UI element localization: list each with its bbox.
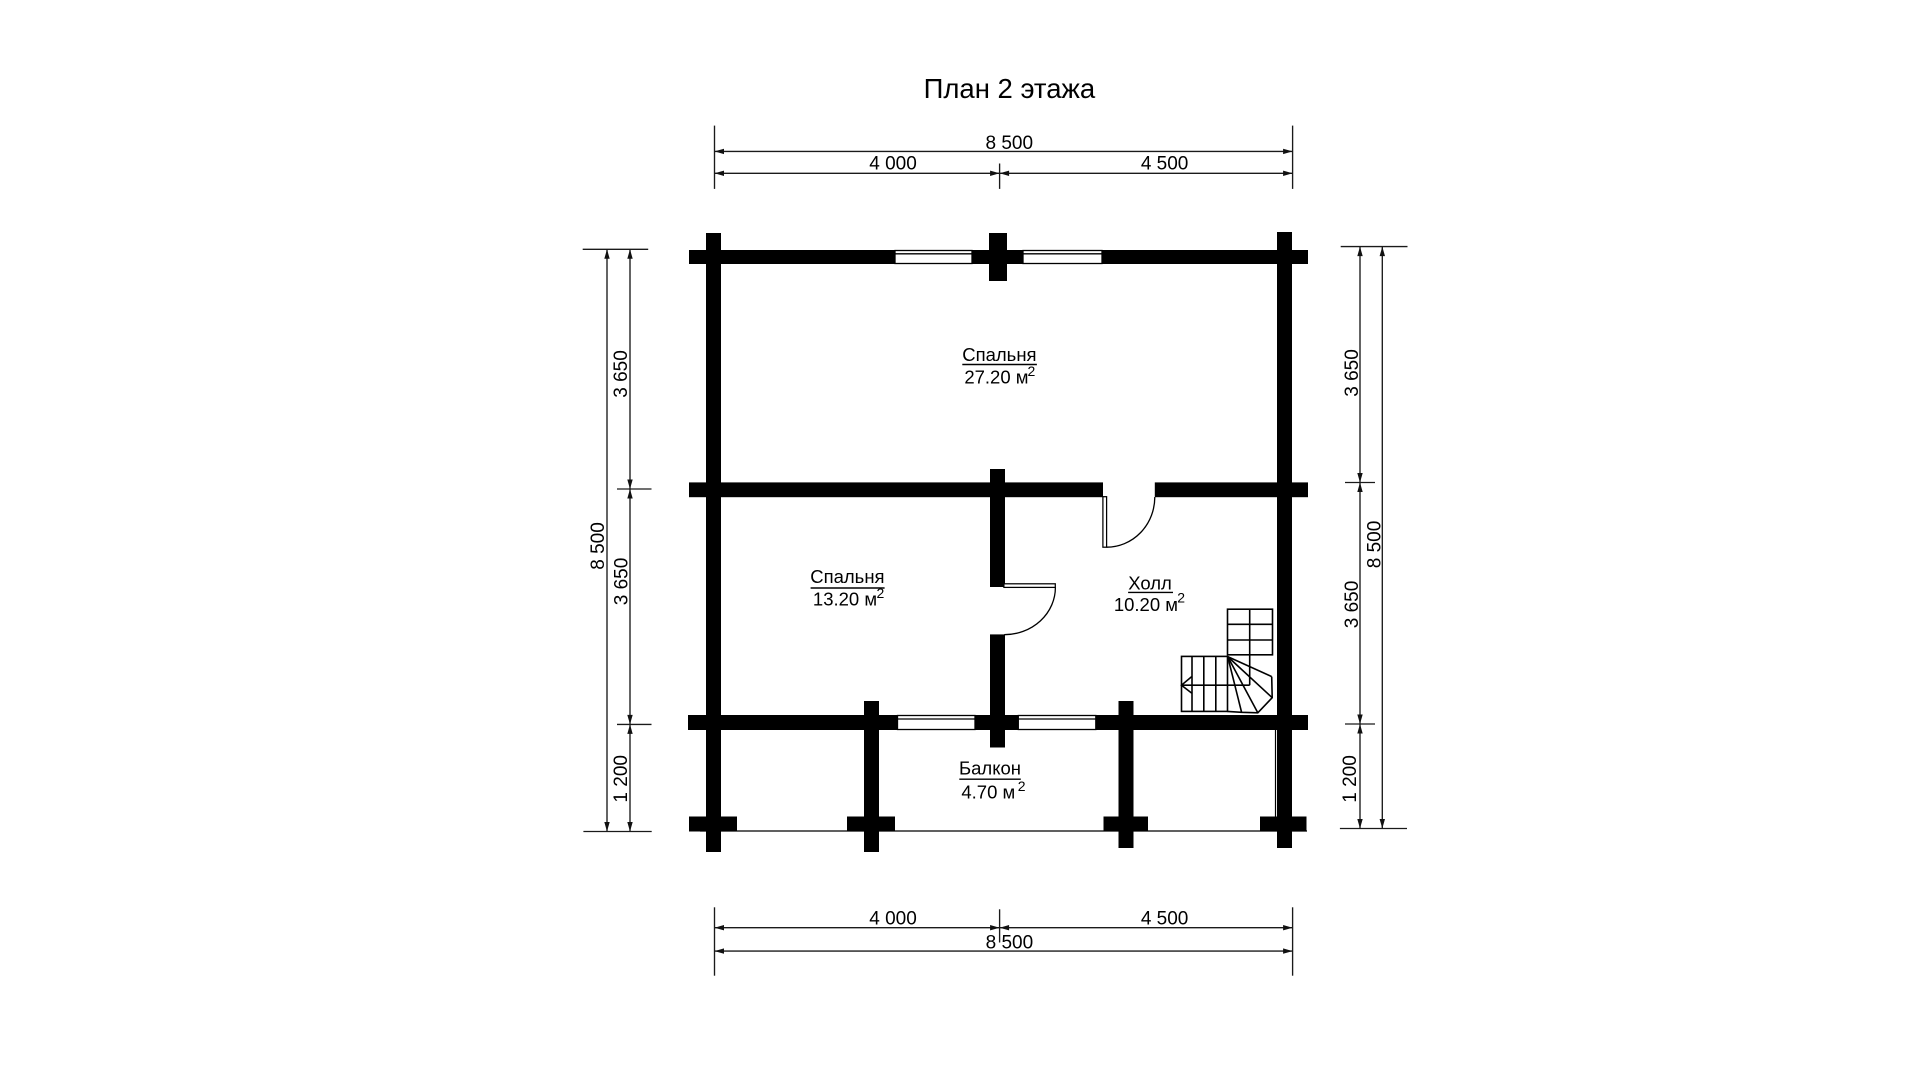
svg-text:8 500: 8 500 xyxy=(1365,521,1386,569)
svg-text:2: 2 xyxy=(1018,778,1026,794)
svg-text:3 650: 3 650 xyxy=(611,350,632,398)
svg-text:Балкон: Балкон xyxy=(959,757,1021,778)
svg-text:План 2 этажа: План 2 этажа xyxy=(924,73,1096,104)
svg-text:2: 2 xyxy=(1177,590,1185,606)
svg-text:8 500: 8 500 xyxy=(588,522,609,570)
svg-text:3 650: 3 650 xyxy=(1342,581,1363,629)
svg-text:8 500: 8 500 xyxy=(986,932,1034,953)
svg-text:10.20 м: 10.20 м xyxy=(1114,594,1178,615)
svg-text:4 500: 4 500 xyxy=(1141,909,1189,930)
svg-text:3 650: 3 650 xyxy=(612,558,633,606)
svg-text:4 000: 4 000 xyxy=(869,909,917,930)
svg-text:Холл: Холл xyxy=(1128,572,1172,593)
svg-text:13.20 м: 13.20 м xyxy=(813,588,877,609)
svg-text:1 200: 1 200 xyxy=(1340,755,1361,803)
svg-text:8 500: 8 500 xyxy=(986,133,1034,154)
svg-text:1 200: 1 200 xyxy=(611,755,632,803)
svg-text:4 000: 4 000 xyxy=(869,153,917,174)
svg-text:Спальня: Спальня xyxy=(962,344,1036,365)
svg-text:4 500: 4 500 xyxy=(1141,153,1189,174)
svg-text:3 650: 3 650 xyxy=(1342,349,1363,397)
svg-text:Спальня: Спальня xyxy=(810,566,884,587)
svg-text:27.20 м: 27.20 м xyxy=(964,366,1028,387)
svg-text:4.70 м: 4.70 м xyxy=(961,782,1015,803)
svg-text:2: 2 xyxy=(877,585,885,601)
svg-text:2: 2 xyxy=(1028,363,1036,379)
